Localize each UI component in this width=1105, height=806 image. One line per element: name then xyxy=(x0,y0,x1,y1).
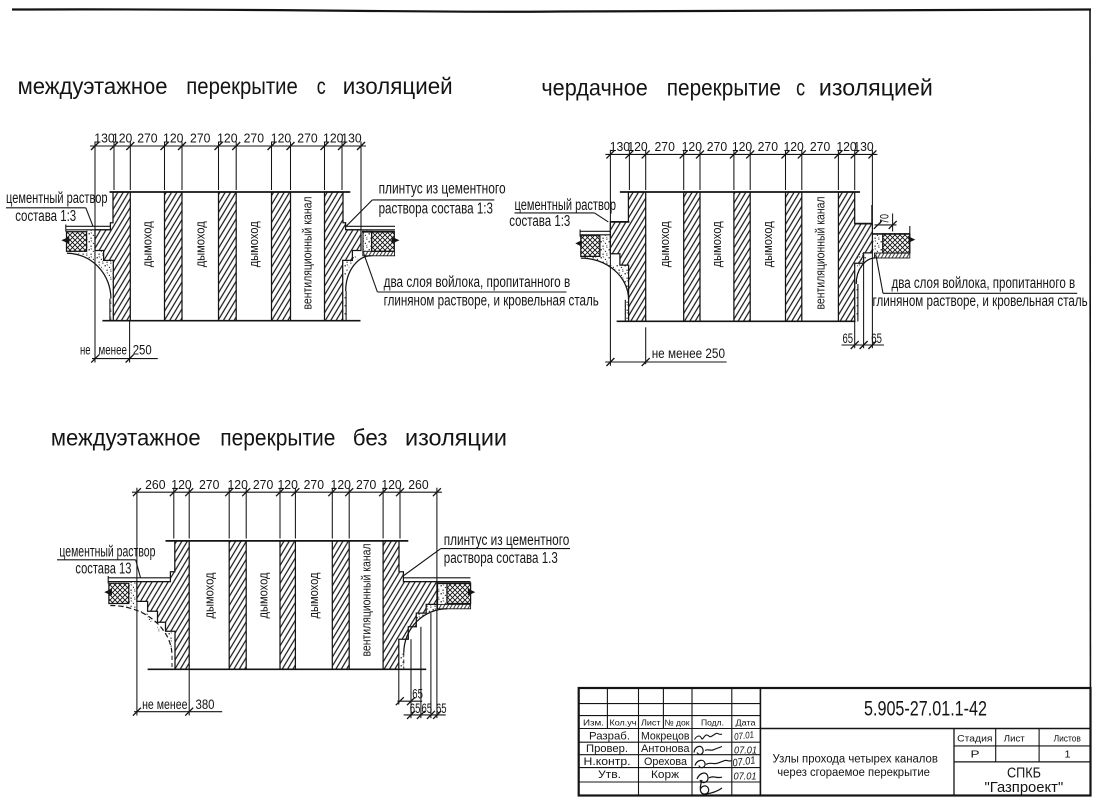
svg-text:270: 270 xyxy=(190,131,210,146)
svg-text:Подл.: Подл. xyxy=(701,718,724,728)
svg-text:270: 270 xyxy=(356,477,376,492)
svg-text:чердачное: чердачное xyxy=(541,75,647,101)
svg-text:дымоход: дымоход xyxy=(709,221,724,267)
svg-text:дымоход: дымоход xyxy=(657,221,672,267)
svg-text:не: не xyxy=(80,343,91,358)
svg-text:270: 270 xyxy=(810,139,830,154)
svg-text:вентиляционный канал: вентиляционный канал xyxy=(812,197,827,310)
svg-text:Провер.: Провер. xyxy=(586,743,628,755)
svg-text:Лист: Лист xyxy=(1004,734,1025,744)
svg-text:120: 120 xyxy=(228,477,248,492)
svg-text:120: 120 xyxy=(732,139,752,154)
svg-text:270: 270 xyxy=(244,131,264,146)
svg-text:плинтус из цементного: плинтус из цементного xyxy=(379,181,506,198)
svg-text:дымоход: дымоход xyxy=(140,221,155,267)
svg-text:65: 65 xyxy=(412,687,423,702)
svg-text:120: 120 xyxy=(112,131,132,146)
svg-text:цементный раствор: цементный раствор xyxy=(6,190,108,207)
svg-text:Кол.уч: Кол.уч xyxy=(610,718,637,728)
svg-text:междуэтажное: междуэтажное xyxy=(18,73,168,99)
svg-text:07.01: 07.01 xyxy=(734,770,757,782)
svg-text:дымоход: дымоход xyxy=(246,221,261,267)
svg-text:дымоход: дымоход xyxy=(306,572,321,618)
svg-text:120: 120 xyxy=(682,139,702,154)
svg-text:120: 120 xyxy=(271,131,291,146)
svg-text:Листов: Листов xyxy=(1054,734,1081,744)
svg-text:менее: менее xyxy=(99,343,128,358)
svg-text:270: 270 xyxy=(304,477,324,492)
svg-text:плинтус из цементного: плинтус из цементного xyxy=(444,532,570,549)
svg-text:цементный раствор: цементный раствор xyxy=(515,197,617,214)
svg-text:Утв.: Утв. xyxy=(598,769,621,781)
svg-text:120: 120 xyxy=(627,139,647,154)
svg-text:5.905-27.01.1-42: 5.905-27.01.1-42 xyxy=(864,697,987,720)
svg-text:270: 270 xyxy=(707,139,727,154)
svg-text:№ док: № док xyxy=(665,718,690,728)
svg-text:через сгораемое перекрытие: через сгораемое перекрытие xyxy=(777,767,930,779)
svg-text:120: 120 xyxy=(783,139,803,154)
svg-text:глиняном растворе, и кровельна: глиняном растворе, и кровельная сталь xyxy=(873,293,1088,310)
svg-text:не менее: не менее xyxy=(142,697,187,712)
svg-text:270: 270 xyxy=(253,477,273,492)
svg-text:без: без xyxy=(353,425,388,451)
svg-text:дымоход: дымоход xyxy=(201,572,216,618)
svg-text:Корж: Корж xyxy=(651,769,680,781)
svg-text:два слоя войлока, пропитанного: два слоя войлока, пропитанного в xyxy=(384,274,571,291)
svg-text:Узлы прохода четырех каналов: Узлы прохода четырех каналов xyxy=(773,754,938,766)
svg-text:120: 120 xyxy=(217,131,237,146)
svg-text:65: 65 xyxy=(410,701,421,716)
svg-text:Р: Р xyxy=(971,748,980,760)
svg-text:380: 380 xyxy=(196,697,215,712)
svg-text:Орехова: Орехова xyxy=(644,756,688,768)
svg-text:Дата: Дата xyxy=(736,718,756,728)
svg-text:270: 270 xyxy=(199,477,219,492)
svg-text:260: 260 xyxy=(145,477,165,492)
svg-text:перекрытие: перекрытие xyxy=(186,73,297,99)
svg-text:120: 120 xyxy=(331,477,351,492)
svg-text:Мокрецов: Мокрецов xyxy=(641,730,690,742)
svg-text:изоляцией: изоляцией xyxy=(343,73,453,99)
svg-text:состава 13: состава 13 xyxy=(75,561,131,578)
svg-text:1: 1 xyxy=(1065,748,1071,760)
svg-text:120: 120 xyxy=(171,477,191,492)
svg-text:не менее 250: не менее 250 xyxy=(652,346,725,361)
svg-text:120: 120 xyxy=(381,477,401,492)
svg-text:270: 270 xyxy=(137,131,157,146)
svg-text:270: 270 xyxy=(758,139,778,154)
svg-text:260: 260 xyxy=(408,477,428,492)
svg-text:с: с xyxy=(317,73,326,99)
svg-text:цементный раствор: цементный раствор xyxy=(59,544,155,561)
svg-text:70: 70 xyxy=(880,214,892,224)
svg-text:"Газпроект": "Газпроект" xyxy=(985,779,1064,796)
svg-text:изоляцией: изоляцией xyxy=(819,75,933,101)
svg-text:состава 1:3: состава 1:3 xyxy=(15,208,76,225)
svg-text:перекрытие: перекрытие xyxy=(220,425,335,451)
svg-text:раствора состава 1.3: раствора состава 1.3 xyxy=(444,550,558,567)
svg-text:изоляции: изоляции xyxy=(405,425,507,451)
svg-text:130: 130 xyxy=(853,139,873,154)
svg-text:Н.контр.: Н.контр. xyxy=(584,756,631,768)
svg-text:дымоход: дымоход xyxy=(193,221,208,267)
svg-text:раствора состава 1:3: раствора состава 1:3 xyxy=(379,200,493,217)
svg-text:120: 120 xyxy=(163,131,183,146)
svg-text:дымоход: дымоход xyxy=(255,572,270,618)
svg-text:вентиляционный канал: вентиляционный канал xyxy=(358,544,373,657)
svg-text:130: 130 xyxy=(341,131,361,146)
svg-text:65: 65 xyxy=(422,701,433,716)
svg-text:Стадия: Стадия xyxy=(957,734,992,744)
svg-text:состава 1:3: состава 1:3 xyxy=(509,213,570,230)
svg-text:Разраб.: Разраб. xyxy=(589,730,630,742)
svg-text:вентиляционный канал: вентиляционный канал xyxy=(300,197,315,310)
svg-text:270: 270 xyxy=(655,139,675,154)
svg-text:65: 65 xyxy=(843,331,854,346)
svg-text:Антонова: Антонова xyxy=(641,743,690,755)
svg-text:Лист: Лист xyxy=(641,718,661,728)
svg-text:глиняном растворе, и кровельна: глиняном растворе, и кровельная сталь xyxy=(384,293,599,310)
svg-text:65: 65 xyxy=(436,701,447,716)
svg-text:два слоя войлока, пропитанного: два слоя войлока, пропитанного в xyxy=(892,275,1076,292)
svg-text:дымоход: дымоход xyxy=(760,221,775,267)
svg-text:250: 250 xyxy=(133,343,152,358)
svg-text:с: с xyxy=(796,75,805,101)
svg-text:перекрытие: перекрытие xyxy=(667,75,781,101)
svg-text:270: 270 xyxy=(297,131,317,146)
svg-text:120: 120 xyxy=(278,477,298,492)
svg-text:65: 65 xyxy=(871,331,882,346)
svg-text:междуэтажное: междуэтажное xyxy=(51,425,201,451)
svg-text:Изм.: Изм. xyxy=(583,718,604,728)
